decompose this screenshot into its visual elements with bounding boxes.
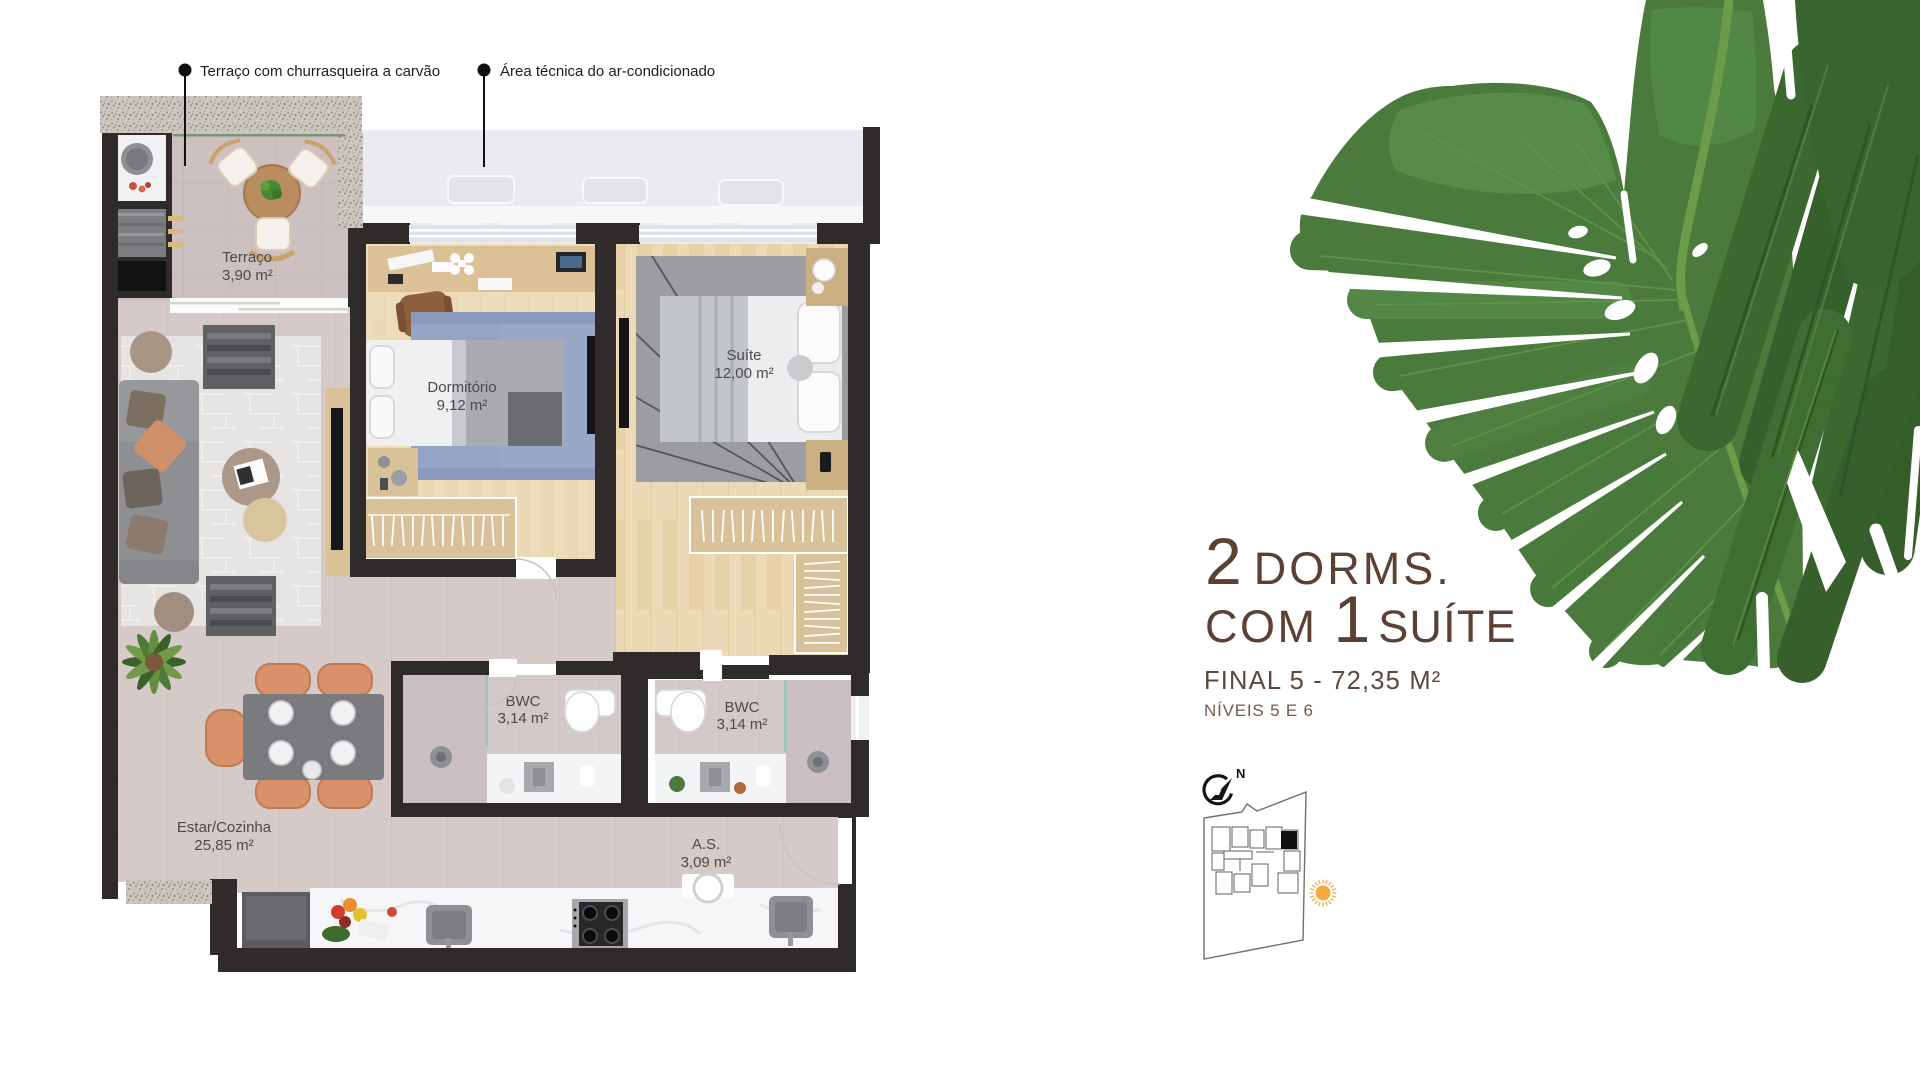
svg-text:BWC: BWC [725, 699, 760, 716]
svg-text:9,12 m²: 9,12 m² [437, 397, 488, 414]
svg-text:Terraço: Terraço [222, 249, 272, 266]
svg-text:Dormitório: Dormitório [427, 379, 496, 396]
svg-text:12,00 m²: 12,00 m² [714, 365, 773, 382]
svg-text:3,90 m²: 3,90 m² [222, 267, 273, 284]
svg-text:N: N [1236, 766, 1245, 781]
svg-text:Terraço com churrasqueira a ca: Terraço com churrasqueira a carvão [200, 63, 440, 80]
svg-text:Área técnica do ar-condicionad: Área técnica do ar-condicionado [500, 63, 715, 80]
svg-text:3,14 m²: 3,14 m² [717, 716, 768, 733]
svg-text:25,85 m²: 25,85 m² [194, 837, 253, 854]
svg-text:FINAL 5 - 72,35 M²: FINAL 5 - 72,35 M² [1204, 667, 1441, 695]
svg-text:Suíte: Suíte [726, 347, 761, 364]
svg-text:3,09 m²: 3,09 m² [681, 854, 732, 871]
svg-text:Estar/Cozinha: Estar/Cozinha [177, 819, 272, 836]
svg-text:BWC: BWC [506, 693, 541, 710]
svg-text:A.S.: A.S. [692, 836, 720, 853]
svg-text:NÍVEIS 5 E 6: NÍVEIS 5 E 6 [1204, 701, 1314, 720]
svg-text:3,14 m²: 3,14 m² [498, 710, 549, 727]
